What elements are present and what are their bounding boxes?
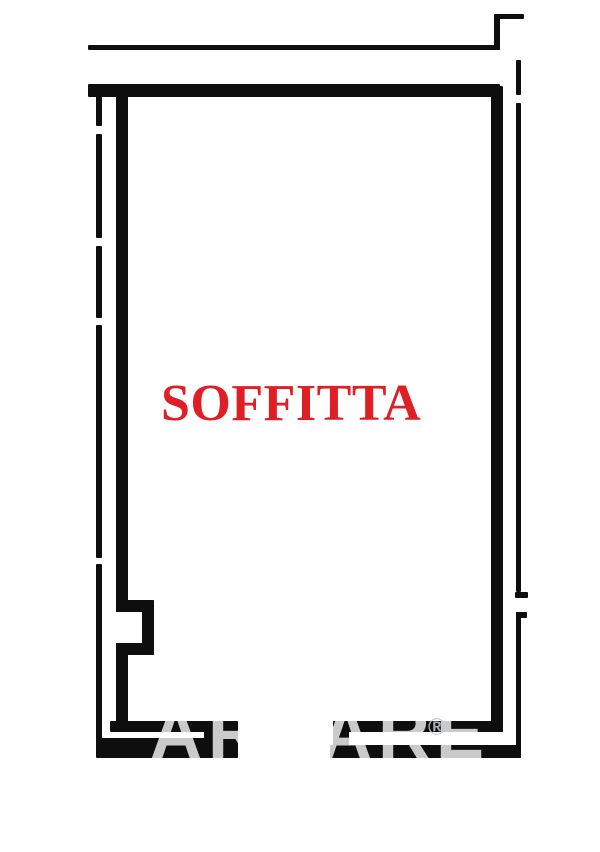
wall-top-inner xyxy=(88,84,500,97)
wall-top-step-vertical xyxy=(494,14,500,50)
wall-right-inner xyxy=(491,86,503,732)
watermark-text-left: AR xyxy=(150,698,266,770)
wall-right-outer-mid xyxy=(516,103,521,592)
wall-left-outer-segment xyxy=(96,246,102,318)
watermark-registered-icon: ® xyxy=(428,714,446,742)
wall-left-inner-upper xyxy=(116,88,128,612)
wall-right-outer-upper xyxy=(516,60,521,95)
wall-top-outer xyxy=(88,45,500,50)
floor-plan-canvas: SOFFITTA AR ARE ® xyxy=(0,0,600,852)
wall-left-outer-segment xyxy=(96,564,102,742)
wall-right-outer-cap-top xyxy=(515,592,528,598)
wall-left-outer-segment xyxy=(96,134,102,238)
wall-left-outer-segment xyxy=(96,325,102,558)
wall-left-outer-segment xyxy=(96,86,102,126)
wall-left-inner-lower xyxy=(116,643,128,732)
wall-top-step-horizontal xyxy=(494,14,524,19)
room-label: SOFFITTA xyxy=(161,378,421,430)
wall-right-outer-lower xyxy=(516,612,521,758)
watermark-text-right: ARE xyxy=(320,698,490,770)
